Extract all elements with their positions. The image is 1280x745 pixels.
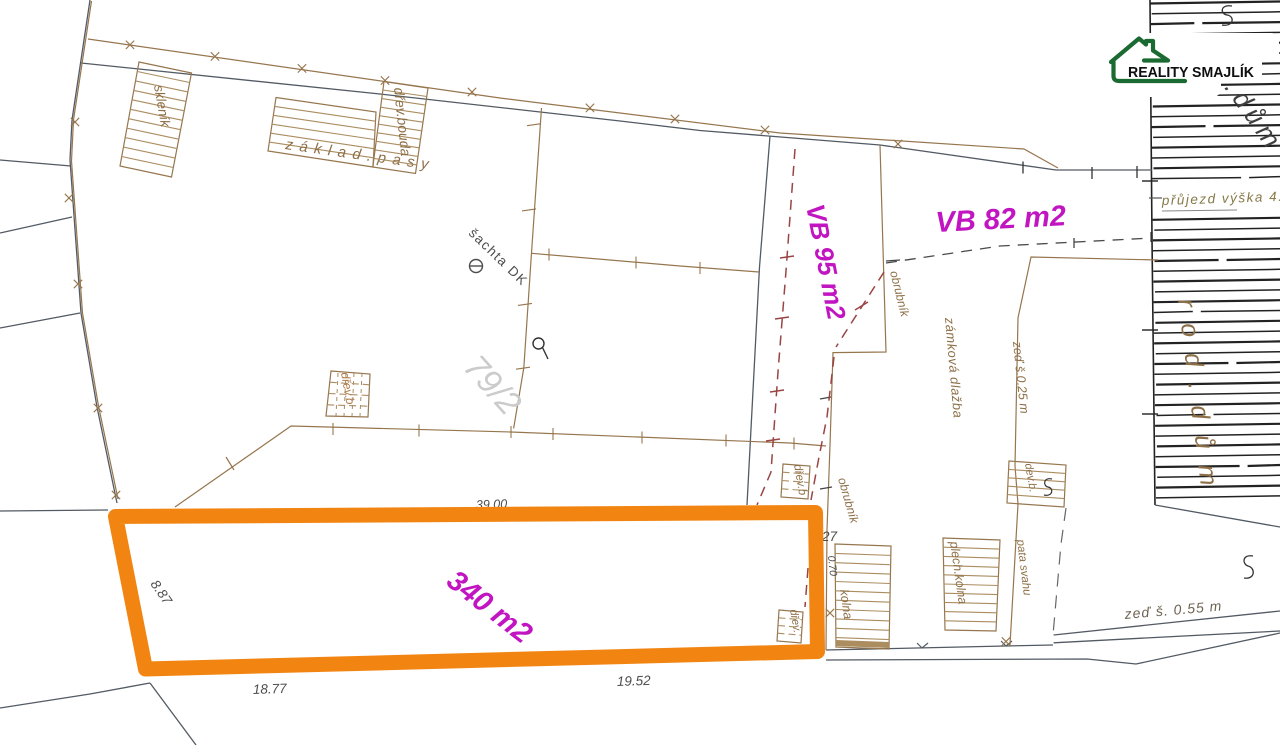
svg-text:VB 82 m2: VB 82 m2: [935, 200, 1067, 239]
svg-text:0.70: 0.70: [825, 555, 839, 577]
svg-text:19.52: 19.52: [617, 673, 652, 689]
svg-text:REALITY SMAJLÍK: REALITY SMAJLÍK: [1128, 64, 1254, 81]
svg-text:27: 27: [821, 529, 838, 544]
svg-text:18.77: 18.77: [253, 681, 288, 697]
